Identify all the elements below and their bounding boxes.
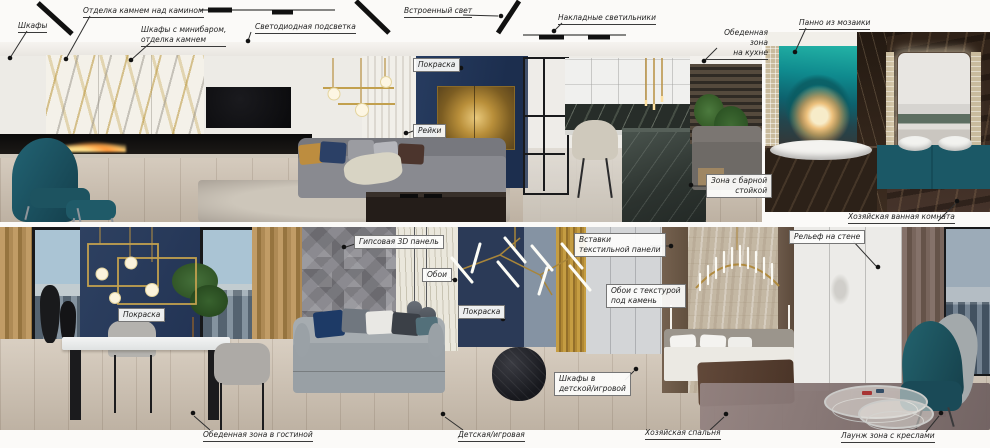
callout-paint-dining: Покраска xyxy=(118,308,165,322)
callout-kids-cabinets: Шкафы в детской/игровой xyxy=(554,372,631,396)
table-decor xyxy=(862,391,872,395)
callout-cabinets: Шкафы xyxy=(18,21,47,33)
partition-mullion-h xyxy=(523,115,565,117)
partition-mullion-h xyxy=(523,153,565,155)
sofa-pillow-navy xyxy=(319,141,346,164)
dining-table-top xyxy=(62,337,230,350)
vessel-sink xyxy=(938,136,972,151)
callout-stone-wallpaper: Обои с текстурой под камень xyxy=(606,284,686,308)
white-relief-wall xyxy=(794,227,904,391)
callout-dining-living-zone: Обеденная зона в гостиной xyxy=(203,430,313,442)
daybed-bolster xyxy=(294,323,310,357)
daybed-drawer-line xyxy=(293,371,445,372)
chair-leg xyxy=(262,383,264,430)
table-tray xyxy=(400,194,418,198)
teal-vanity xyxy=(877,145,990,189)
callout-led-lighting: Светодиодная подсветка xyxy=(255,22,356,34)
bar-stool-back xyxy=(572,120,618,160)
moodboard-canvas: Шкафы Отделка камнем над камином Шкафы с… xyxy=(0,0,990,448)
callout-master-bedroom: Хозяйская спальня xyxy=(645,428,721,440)
daybed-body xyxy=(293,343,445,393)
mosaic-tile-column xyxy=(765,46,779,154)
callout-paint-kids: Покраска xyxy=(458,305,505,319)
callout-mosaic-panel: Панно из мозаики xyxy=(799,18,870,30)
callout-paint-living: Покраска xyxy=(413,58,460,72)
callout-kitchen-dining-zone: Обеденная зона на кухне xyxy=(706,28,768,60)
ocean-wave-mosaic-panel xyxy=(779,46,857,152)
kids-navy-paint-wall xyxy=(458,227,524,347)
marble-fireplace-panel xyxy=(46,55,204,135)
callout-bar-zone: Зона с барной стойкой xyxy=(706,174,772,198)
bathtub xyxy=(770,140,872,160)
partition-mullion-v xyxy=(543,57,545,191)
fluted-slat-panel xyxy=(362,56,418,150)
callout-surface-lights: Накладные светильники xyxy=(558,13,656,25)
callout-gypsum-panel: Гипсовая 3D панель xyxy=(354,235,444,249)
daybed-bolster xyxy=(428,323,444,357)
gray-blue-panel xyxy=(524,227,556,347)
table-tray xyxy=(424,194,442,198)
callout-wall-relief: Рельеф на стене xyxy=(789,230,865,244)
vessel-sink xyxy=(898,136,932,151)
chair-leg xyxy=(220,383,222,430)
callout-recessed-light: Встроенный свет xyxy=(404,6,472,18)
table-leg xyxy=(70,350,81,420)
dining-chair-back xyxy=(214,343,270,385)
callout-lounge-zone: Лаунж зона с креслами xyxy=(841,431,935,443)
sofa-pillow-brown xyxy=(397,143,424,164)
chair-leg xyxy=(150,355,152,413)
callout-slats: Рейки xyxy=(413,124,446,138)
callout-wallpaper: Обои xyxy=(422,268,452,282)
render-master-bathroom xyxy=(765,32,990,212)
glass-partition xyxy=(523,57,569,195)
plant-foliage xyxy=(190,285,228,317)
callout-textile-inserts: Вставки текстильной панели xyxy=(574,233,666,257)
callout-kids-room: Детская/игровая xyxy=(458,430,525,442)
black-vase xyxy=(40,285,60,343)
callout-master-bathroom: Хозяйская ванная комната xyxy=(848,212,955,224)
callout-stone-fireplace: Отделка камнем над камином xyxy=(83,6,204,18)
black-pouf xyxy=(492,347,546,401)
track-light-bar xyxy=(498,1,519,33)
tv-screen xyxy=(206,87,291,128)
chair-leg xyxy=(114,355,116,413)
callout-minibar-cabinets: Шкафы с минибаром, отделка камнем xyxy=(141,25,226,47)
track-light-bar xyxy=(356,1,389,33)
render-bottom-strip xyxy=(0,227,990,430)
nesting-table-top xyxy=(858,399,934,429)
table-decor xyxy=(876,389,884,393)
render-living-kitchen xyxy=(0,42,762,222)
daybed-pillow-navy xyxy=(313,310,346,339)
daybed-pillow-white xyxy=(365,310,394,334)
